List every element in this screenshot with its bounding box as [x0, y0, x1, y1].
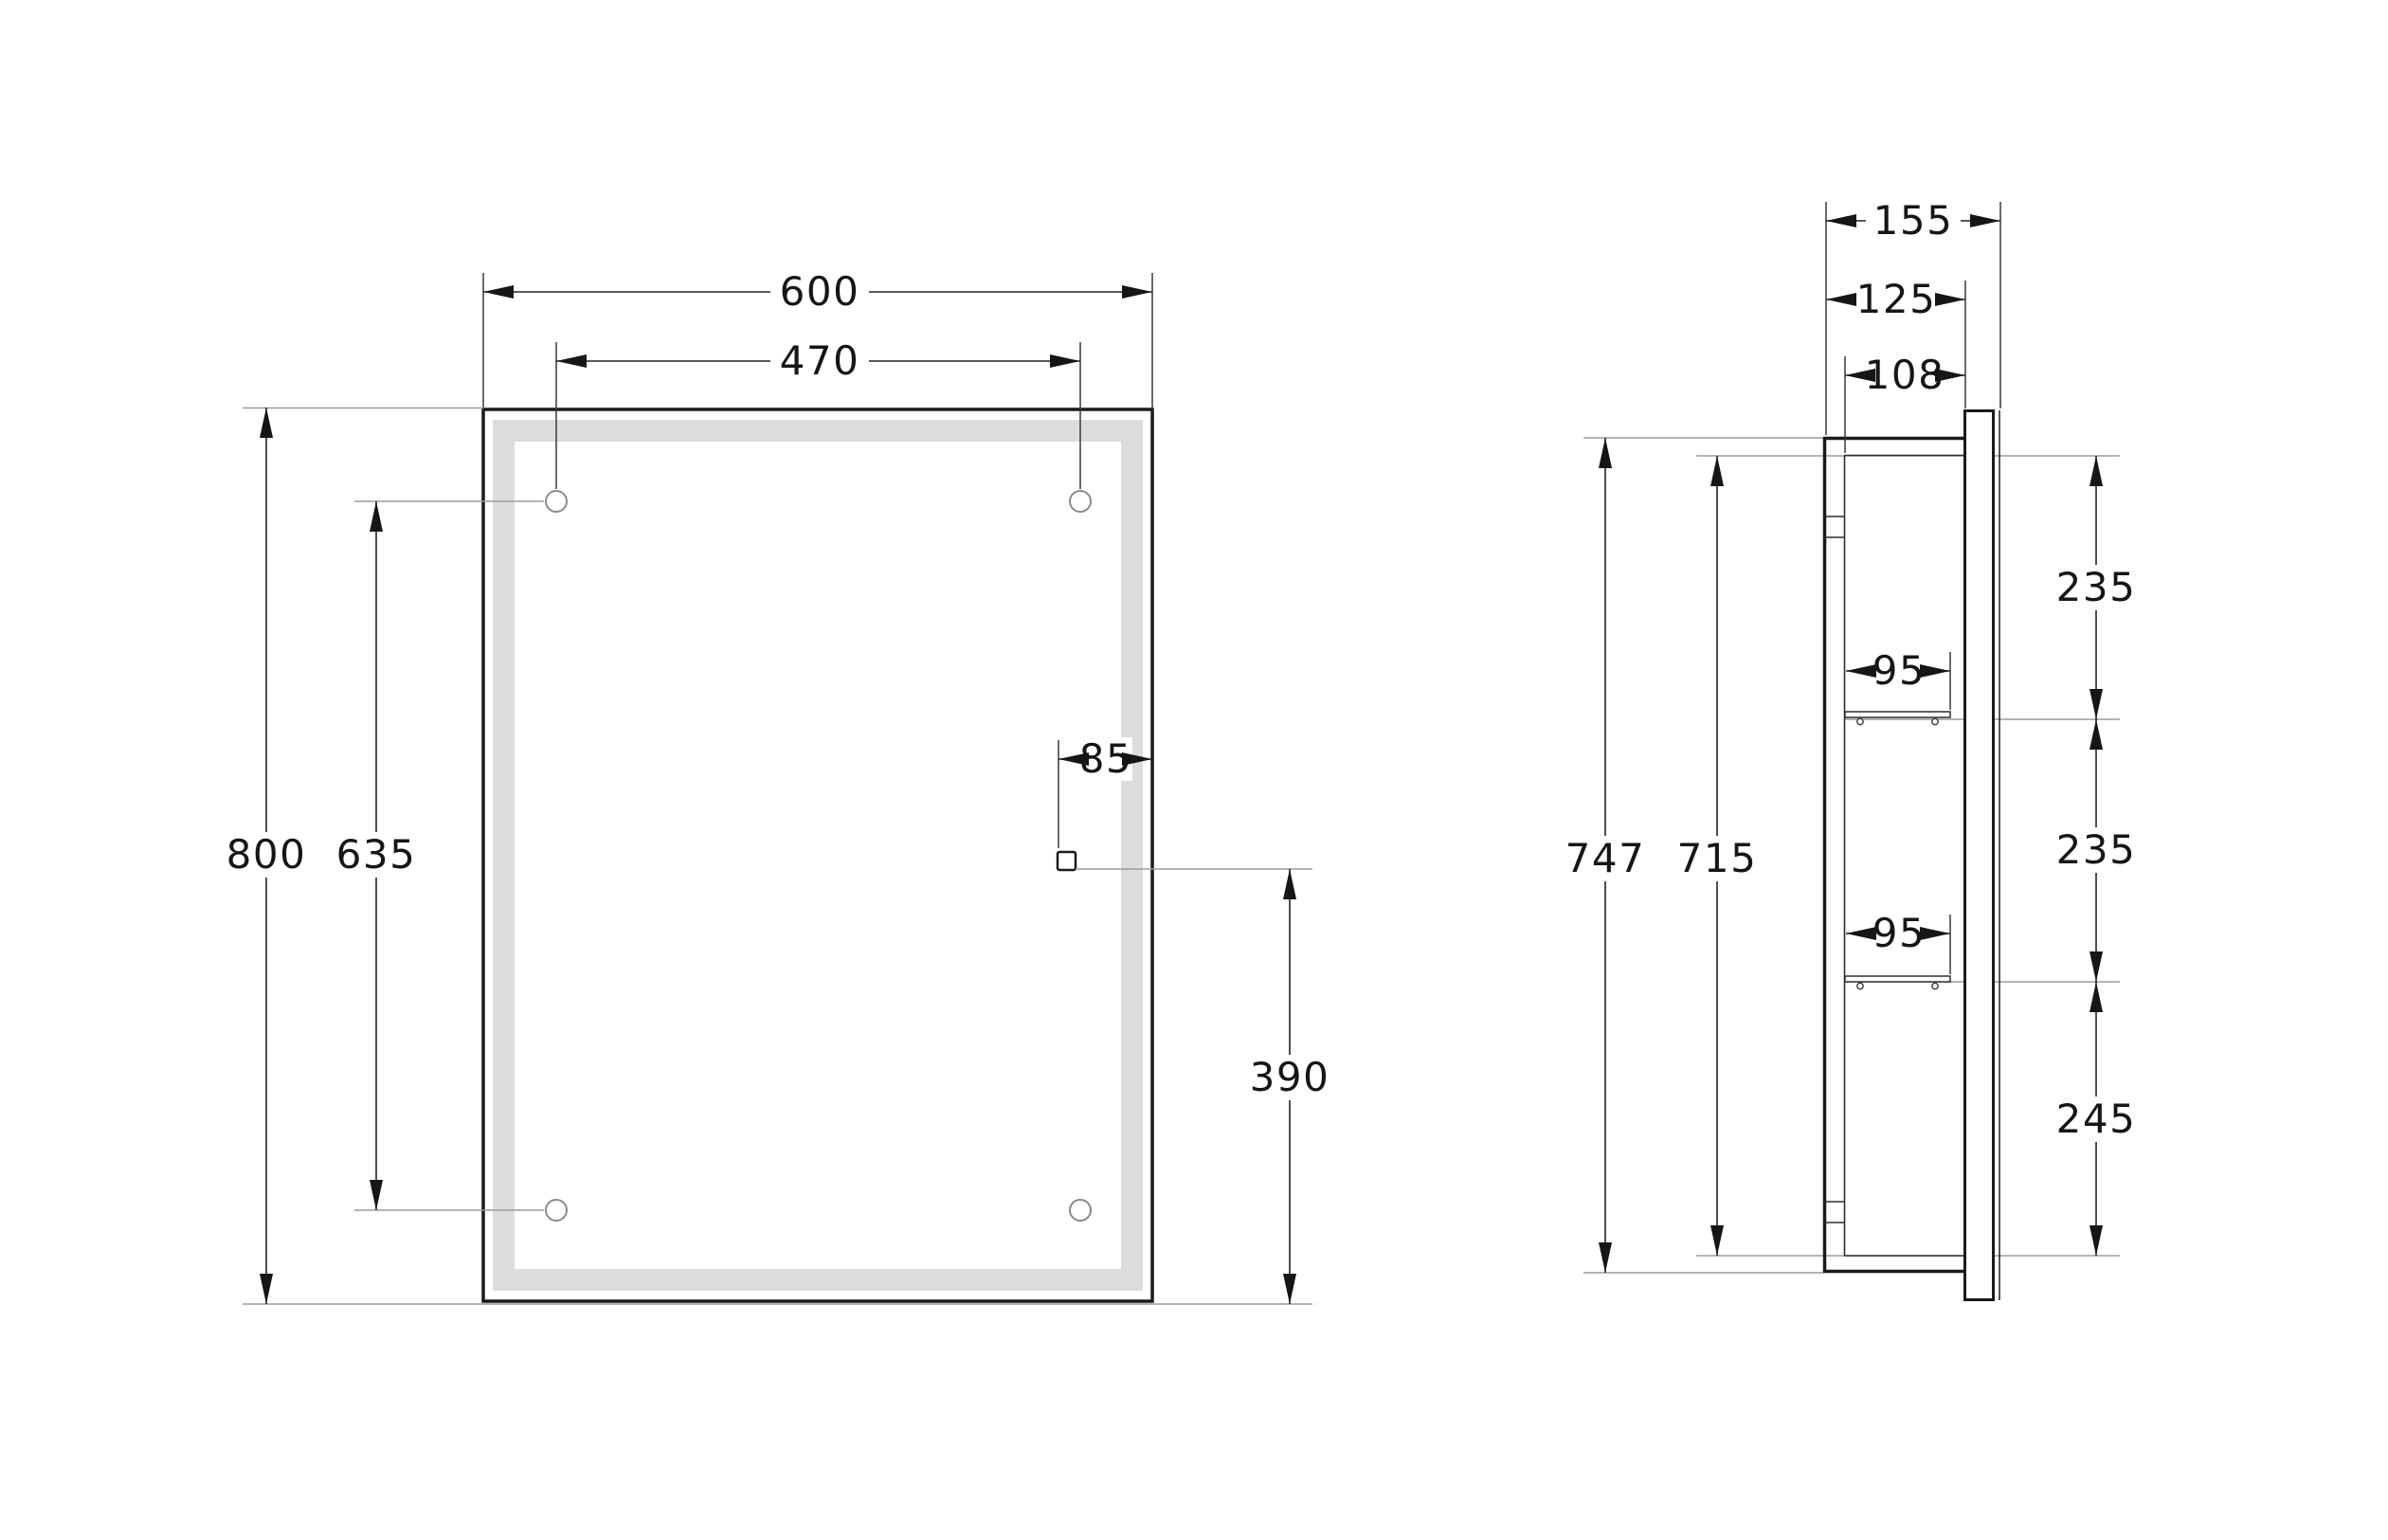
- dim-label-mirror-width: 600: [780, 268, 860, 315]
- dim-label-sensor-offset: 85: [1079, 735, 1132, 782]
- arrow-up-icon: [260, 408, 273, 438]
- arrow-down-icon: [1710, 1225, 1724, 1256]
- arrow-down-icon: [1283, 1274, 1296, 1304]
- arrow-down-icon: [2089, 1225, 2103, 1256]
- dim-label-depth-total: 155: [1873, 197, 1954, 244]
- dim-label-hole-spacing-vertical: 635: [336, 831, 417, 878]
- arrow-right-icon: [1050, 354, 1080, 368]
- dim-label-depth-body: 125: [1856, 276, 1937, 322]
- dim-label-mirror-height: 800: [226, 831, 307, 878]
- dim-label-height-total: 747: [1565, 835, 1646, 881]
- arrow-down-icon: [1599, 1242, 1612, 1273]
- arrow-up-icon: [2089, 456, 2103, 486]
- dim-label-hole-spacing-horizontal: 470: [780, 337, 860, 384]
- dim-height-inner: 715: [1668, 456, 1766, 1256]
- arrow-right-icon: [1122, 285, 1152, 299]
- mirror-outline: [483, 409, 1152, 1301]
- dim-gap-middle-shelf: 235: [2047, 719, 2145, 982]
- arrow-left-icon: [483, 285, 514, 299]
- dim-shelf-depth-bottom: 95: [1846, 910, 1950, 974]
- technical-drawing-canvas: 600 470 800: [0, 0, 2388, 1540]
- touch-sensor: [1058, 852, 1076, 870]
- shelf-peg: [1857, 718, 1863, 724]
- dim-label-sensor-height: 390: [1250, 1054, 1330, 1100]
- mounting-hole-bottom-right: [1070, 1200, 1091, 1221]
- arrow-right-icon: [1935, 293, 1965, 306]
- door-panel: [1965, 411, 1994, 1300]
- dim-label-shelf-depth-top: 95: [1872, 647, 1926, 694]
- shelf-top: [1845, 712, 1950, 725]
- cabinet-body: [1823, 437, 1965, 1273]
- dim-label-height-inner: 715: [1677, 835, 1758, 881]
- arrow-right-icon: [1970, 214, 2000, 227]
- mounting-hole-top-right: [1070, 491, 1091, 512]
- arrow-up-icon: [1710, 456, 1724, 486]
- arrow-down-icon: [370, 1180, 383, 1210]
- dim-label-gap-bottom-shelf: 245: [2056, 1096, 2137, 1142]
- shelf-peg: [1857, 983, 1863, 988]
- dim-label-depth-inner: 108: [1865, 352, 1945, 398]
- shelf-board: [1845, 712, 1950, 717]
- shelf-peg: [1932, 983, 1938, 988]
- arrow-down-icon: [2089, 689, 2103, 719]
- arrow-up-icon: [1283, 869, 1296, 899]
- front-view: 600 470 800: [217, 268, 1339, 1304]
- arrow-down-icon: [260, 1274, 273, 1304]
- dim-shelf-depth-top: 95: [1846, 647, 1950, 710]
- mounting-hole-top-left: [546, 491, 567, 512]
- mirror-door: [1965, 410, 2000, 1300]
- arrow-up-icon: [2089, 719, 2103, 750]
- arrow-left-icon: [1826, 214, 1856, 227]
- side-view: 155 125 108 95: [1556, 197, 2145, 1300]
- shelf-bottom: [1845, 976, 1950, 989]
- shelf-peg: [1932, 718, 1938, 724]
- arrow-up-icon: [370, 501, 383, 532]
- dim-label-gap-middle-shelf: 235: [2056, 826, 2137, 873]
- mounting-hole-bottom-left: [546, 1200, 567, 1221]
- dim-label-gap-top-shelf: 235: [2056, 564, 2137, 610]
- arrow-left-icon: [1826, 293, 1856, 306]
- dim-gap-bottom-shelf: 245: [2047, 982, 2145, 1256]
- arrow-up-icon: [1599, 438, 1612, 468]
- arrow-down-icon: [2089, 951, 2103, 982]
- shelf-board: [1845, 976, 1950, 982]
- dim-label-shelf-depth-bottom: 95: [1872, 910, 1926, 956]
- dim-gap-top-shelf: 235: [2047, 456, 2145, 719]
- arrow-left-icon: [556, 354, 587, 368]
- arrow-up-icon: [2089, 982, 2103, 1012]
- dim-height-total: 747: [1556, 438, 1655, 1273]
